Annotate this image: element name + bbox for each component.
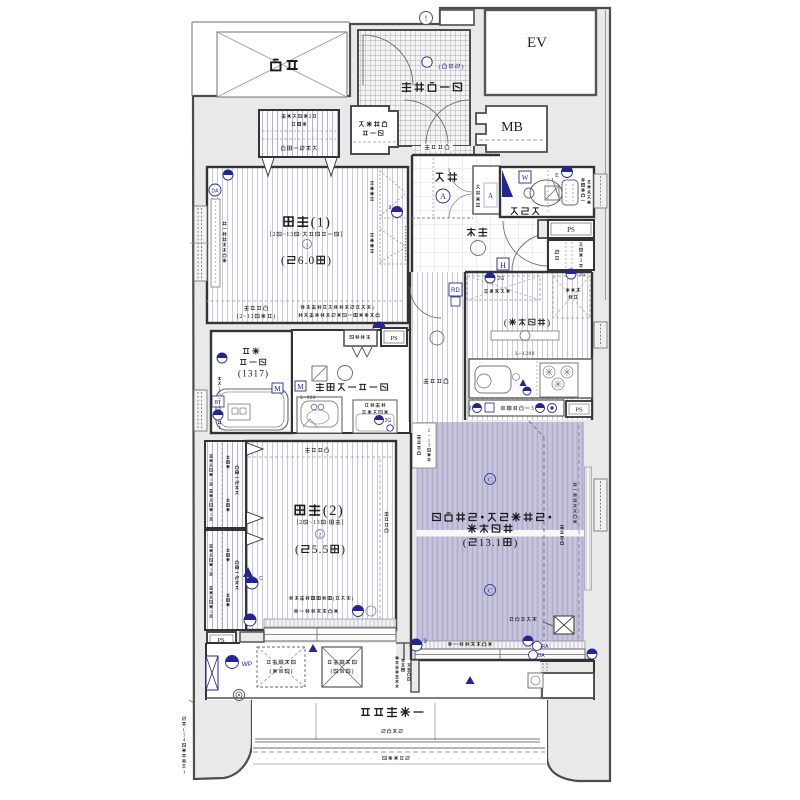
- svg-text:BT: BT: [215, 400, 221, 406]
- svg-text:(: (: [323, 503, 328, 519]
- svg-text:2G: 2G: [385, 418, 392, 424]
- svg-text:M: M: [274, 385, 281, 393]
- svg-text:(: (: [311, 216, 316, 231]
- svg-text:A: A: [488, 192, 493, 200]
- svg-text:1: 1: [313, 519, 316, 526]
- svg-text:0: 0: [309, 255, 315, 267]
- svg-text:): ): [352, 668, 354, 675]
- svg-text:.: .: [492, 537, 495, 549]
- svg-text:0: 0: [313, 395, 316, 401]
- svg-text:4: 4: [183, 738, 186, 744]
- svg-text:3: 3: [531, 406, 534, 412]
- svg-text:PS: PS: [575, 407, 583, 414]
- svg-text:): ): [291, 668, 293, 675]
- svg-text:): ): [183, 768, 185, 775]
- svg-text:6: 6: [298, 255, 304, 267]
- svg-text:2: 2: [239, 313, 242, 320]
- svg-text:3: 3: [580, 258, 583, 264]
- svg-text:3: 3: [485, 537, 491, 549]
- svg-text:(: (: [331, 668, 333, 675]
- svg-text:H: H: [500, 261, 506, 270]
- svg-text:(: (: [504, 317, 507, 328]
- svg-text:5: 5: [323, 544, 329, 556]
- svg-text:): ): [461, 63, 463, 70]
- svg-text::: :: [327, 519, 329, 526]
- svg-text:7: 7: [259, 369, 264, 379]
- svg-text:E: E: [555, 173, 559, 179]
- svg-text:0: 0: [532, 351, 535, 357]
- svg-text:1: 1: [496, 537, 502, 549]
- svg-text:C: C: [259, 576, 263, 582]
- svg-text:1: 1: [242, 369, 247, 379]
- svg-text:2: 2: [299, 519, 302, 526]
- svg-text:EV: EV: [527, 35, 547, 51]
- svg-text:[: [: [270, 231, 272, 238]
- svg-text:1: 1: [286, 231, 289, 238]
- svg-text:RD: RD: [451, 288, 460, 294]
- svg-text:W: W: [522, 174, 529, 182]
- svg-text:C: C: [488, 589, 492, 595]
- svg-text:): ): [514, 537, 518, 549]
- svg-text:): ): [265, 368, 268, 379]
- svg-text:3: 3: [389, 205, 392, 211]
- svg-text:1: 1: [247, 313, 250, 320]
- svg-text:A: A: [440, 192, 446, 201]
- svg-text:): ): [372, 304, 374, 311]
- svg-text:3: 3: [251, 313, 254, 320]
- svg-text:2: 2: [469, 406, 472, 412]
- svg-text:2: 2: [329, 503, 336, 519]
- svg-text:(: (: [439, 63, 441, 70]
- svg-text:.: .: [305, 255, 308, 267]
- svg-text:1: 1: [479, 537, 485, 549]
- svg-text:C: C: [488, 478, 492, 484]
- svg-text:DA: DA: [212, 189, 220, 195]
- svg-text:): ): [325, 216, 330, 231]
- svg-text:PS: PS: [567, 226, 575, 234]
- svg-text:WP: WP: [242, 661, 252, 668]
- svg-text:(: (: [281, 255, 285, 267]
- svg-text:3: 3: [317, 519, 320, 526]
- svg-text:PS: PS: [390, 335, 398, 342]
- svg-text:): ): [338, 503, 343, 519]
- svg-text:OA: OA: [537, 653, 545, 659]
- svg-text:): ): [547, 317, 550, 328]
- svg-text::: :: [300, 231, 302, 238]
- svg-text:3: 3: [248, 369, 253, 379]
- svg-text:2G: 2G: [498, 276, 505, 282]
- svg-text:1: 1: [317, 216, 324, 231]
- svg-text:.: .: [319, 544, 322, 556]
- svg-text:]: ]: [341, 519, 343, 526]
- svg-text:2: 2: [309, 114, 312, 120]
- svg-text:PS: PS: [217, 637, 225, 644]
- svg-text:(: (: [238, 368, 241, 379]
- svg-text:]: ]: [340, 231, 342, 238]
- svg-text:2G: 2G: [579, 272, 586, 278]
- svg-text:1: 1: [306, 243, 309, 249]
- svg-text:): ): [327, 255, 331, 267]
- svg-text:2: 2: [319, 533, 322, 539]
- svg-text:3: 3: [290, 231, 293, 238]
- svg-text:5: 5: [312, 544, 318, 556]
- svg-text:): ): [352, 595, 354, 602]
- svg-text:(: (: [295, 544, 299, 556]
- svg-text:2: 2: [273, 231, 276, 238]
- svg-text:): ): [341, 544, 345, 556]
- svg-text:MB: MB: [501, 120, 523, 135]
- svg-text:RA: RA: [542, 644, 550, 650]
- svg-text:1: 1: [253, 369, 258, 379]
- svg-text:(: (: [463, 537, 467, 549]
- svg-text:(: (: [333, 595, 335, 602]
- svg-text:M: M: [297, 383, 304, 391]
- svg-text:): ): [273, 313, 275, 320]
- svg-text:(: (: [270, 668, 272, 675]
- svg-text:!: !: [425, 14, 428, 23]
